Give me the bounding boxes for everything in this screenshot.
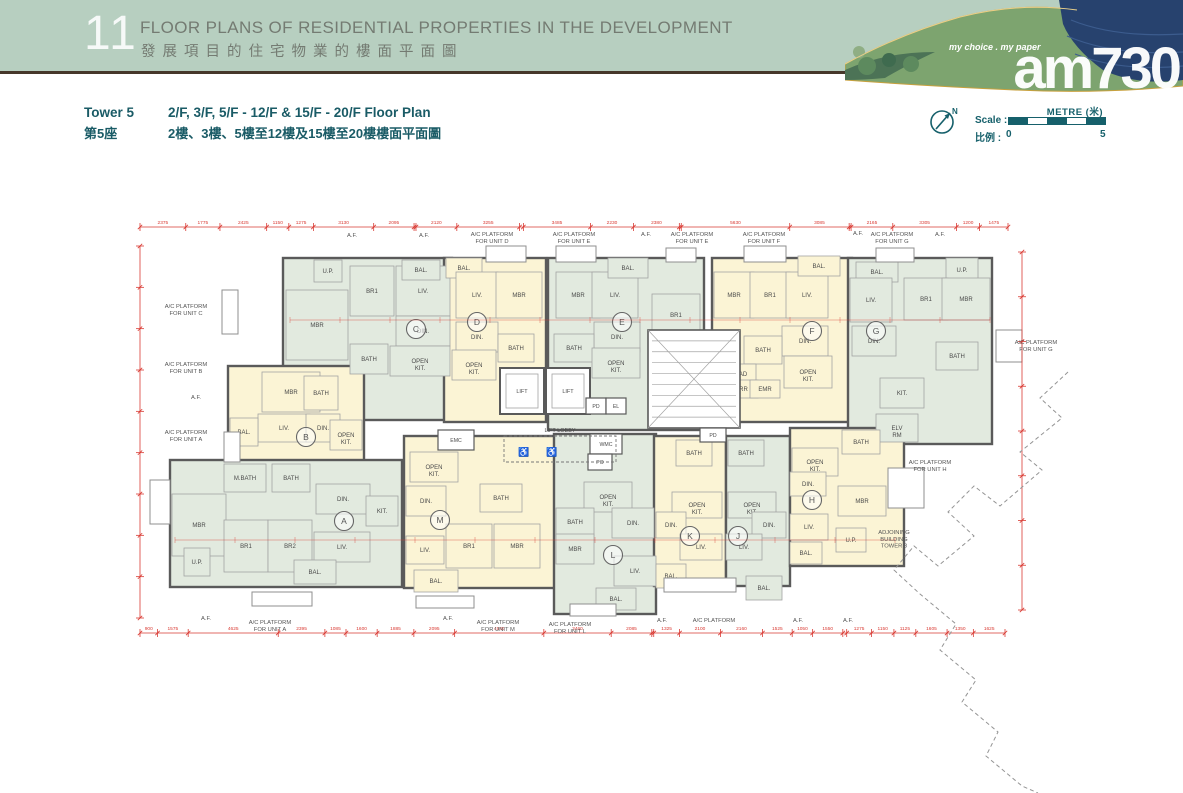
room-label: ELVRM bbox=[892, 426, 903, 439]
annotation-a-f-: A.F. bbox=[201, 616, 211, 622]
room-label: BR1 bbox=[463, 544, 475, 550]
dim-value: 1150 bbox=[878, 626, 889, 632]
room-label: LIV. bbox=[420, 548, 430, 554]
dim-value: 2165 bbox=[867, 220, 878, 226]
annotation-a-f-: A.F. bbox=[853, 231, 863, 237]
room-label: BAL. bbox=[308, 570, 321, 576]
ac-platform bbox=[996, 330, 1022, 362]
dim-value: 3255 bbox=[483, 220, 494, 226]
room-label: BATH bbox=[313, 391, 329, 397]
room-label: BATH bbox=[738, 451, 754, 457]
room-label: BAL. bbox=[609, 597, 622, 603]
room-label: U.P. bbox=[957, 268, 968, 274]
dim-value: 1150 bbox=[273, 220, 284, 226]
room-label: BAL. bbox=[429, 579, 442, 585]
room-label: DIN. bbox=[471, 335, 483, 341]
room-label: BR1 bbox=[240, 544, 252, 550]
room-label: LIV. bbox=[472, 293, 482, 299]
room-label: BATH bbox=[283, 476, 299, 482]
room-label: LIV. bbox=[802, 293, 812, 299]
ac-platform bbox=[556, 246, 596, 262]
room-label: BAL. bbox=[799, 551, 812, 557]
unit-G-letter: G bbox=[873, 326, 880, 336]
annotation-a-c-platform: A/C PLATFORMFOR UNIT G bbox=[1015, 340, 1058, 353]
ac-platform bbox=[666, 248, 696, 262]
unit-D-letter: D bbox=[474, 317, 480, 327]
room-label: BR2 bbox=[284, 544, 296, 550]
annotation-a-c-platform: A/C PLATFORMFOR UNIT E bbox=[671, 232, 714, 245]
dim-value: 5630 bbox=[730, 220, 741, 226]
dim-value: 2100 bbox=[695, 626, 706, 632]
dim-value: 4625 bbox=[228, 626, 239, 632]
service-room-label: EL bbox=[613, 404, 619, 410]
room-label: BAL. bbox=[414, 268, 427, 274]
room-label: BATH bbox=[508, 346, 524, 352]
dim-value: 900 bbox=[145, 626, 153, 632]
unit-H-letter: H bbox=[809, 495, 815, 505]
dim-value: 1085 bbox=[330, 626, 341, 632]
annotation-a-c-platform: A/C PLATFORMFOR UNIT H bbox=[909, 460, 952, 473]
annotation-a-c-platform: A/C PLATFORMFOR UNIT E bbox=[553, 232, 596, 245]
dim-value: 1275 bbox=[854, 626, 865, 632]
unit-J-letter: J bbox=[736, 531, 740, 541]
lift-lobby-label: LIFT LOBBY bbox=[544, 428, 575, 434]
room-label: MBR bbox=[192, 523, 206, 529]
annotation-a-c-platform: A/C PLATFORMFOR UNIT D bbox=[471, 232, 514, 245]
service-room-label: PO bbox=[596, 460, 604, 466]
room-label: BAL. bbox=[757, 586, 770, 592]
annotation-a-f-: A.F. bbox=[191, 395, 201, 401]
room-label: MBR bbox=[959, 297, 973, 303]
room-label: LIV. bbox=[739, 545, 749, 551]
room-label: LIV. bbox=[610, 293, 620, 299]
dim-value: 2375 bbox=[158, 220, 169, 226]
room-label: MBR bbox=[855, 499, 869, 505]
dim-value: 2425 bbox=[238, 220, 249, 226]
room-label: BR1 bbox=[920, 297, 932, 303]
dim-value: 1050 bbox=[797, 626, 808, 632]
annotation-a-c-platform: A/C PLATFORMFOR UNIT L bbox=[549, 622, 592, 635]
room-label: EMR bbox=[758, 387, 772, 393]
ac-platform bbox=[222, 290, 238, 334]
dim-value: 1325 bbox=[661, 626, 672, 632]
lift-label: LIFT bbox=[516, 389, 528, 395]
ac-platform bbox=[252, 592, 312, 606]
annotation-a-c-platform: A/C PLATFORMFOR UNIT F bbox=[743, 232, 786, 245]
annotation-a-f-: A.F. bbox=[347, 233, 357, 239]
service-room-label: PD bbox=[709, 433, 716, 439]
room-label: BATH bbox=[566, 346, 582, 352]
dim-value: 1625 bbox=[984, 626, 995, 632]
dim-value: 1775 bbox=[198, 220, 209, 226]
service-room-label: EMC bbox=[450, 438, 462, 444]
room-label: DIN. bbox=[627, 521, 639, 527]
dim-value: 1885 bbox=[390, 626, 401, 632]
dim-value: 1125 bbox=[900, 626, 911, 632]
room-label: BATH bbox=[755, 348, 771, 354]
room-label: BAL. bbox=[457, 266, 470, 272]
room-label: U.P. bbox=[192, 560, 203, 566]
wheelchair-icon: ♿ bbox=[518, 446, 529, 457]
lift-label: LIFT bbox=[562, 389, 574, 395]
dim-value: 2120 bbox=[431, 220, 442, 226]
dim-value: 2380 bbox=[651, 220, 662, 226]
room-label: BAL. bbox=[870, 270, 883, 276]
dim-value: 3305 bbox=[919, 220, 930, 226]
annotation-a-c-platform: A/C PLATFORMFOR UNIT A bbox=[165, 430, 208, 443]
dim-value: 2085 bbox=[626, 626, 637, 632]
annotation-a-c-platform: A/C PLATFORMFOR UNIT C bbox=[165, 304, 208, 317]
room-label: MBR bbox=[310, 323, 324, 329]
dim-value: 1200 bbox=[963, 220, 974, 226]
room-label: DIN. bbox=[337, 497, 349, 503]
dim-value: 1600 bbox=[356, 626, 367, 632]
room-label: MBR bbox=[727, 293, 741, 299]
room-label: U.P. bbox=[846, 538, 857, 544]
unit-B-letter: B bbox=[303, 432, 309, 442]
room-label: BR1 bbox=[670, 313, 682, 319]
room-label: DIN. bbox=[763, 523, 775, 529]
room-label: DIN. bbox=[420, 499, 432, 505]
annotation-a-f-: A.F. bbox=[419, 233, 429, 239]
annotation-a-c-platform: A/C PLATFORMFOR UNIT A bbox=[249, 620, 292, 633]
wheelchair-icon: ♿ bbox=[546, 446, 557, 457]
room-label: LIV. bbox=[418, 289, 428, 295]
dim-value: 1550 bbox=[822, 626, 833, 632]
unit-K-letter: K bbox=[687, 531, 693, 541]
room-label: LIV. bbox=[804, 525, 814, 531]
room-label: M.BATH bbox=[234, 476, 256, 482]
room-label: DIN. bbox=[317, 426, 329, 432]
dim-value: 3130 bbox=[338, 220, 349, 226]
room-label: BR1 bbox=[764, 293, 776, 299]
room-label: DIN. bbox=[611, 335, 623, 341]
room-label: KIT. bbox=[897, 391, 908, 397]
room-label: LIV. bbox=[630, 569, 640, 575]
unit-F-letter: F bbox=[809, 326, 814, 336]
ac-platform bbox=[416, 596, 474, 608]
unit-A-letter: A bbox=[341, 516, 347, 526]
room-label: LIV. bbox=[696, 545, 706, 551]
annotation-a-c-platform: A/C PLATFORM bbox=[693, 618, 736, 624]
floor-plan: MBRBR1LIV.DIN.BATHOPENKIT.BAL.U.P.MBRBAT… bbox=[0, 0, 1183, 793]
ac-platform bbox=[876, 248, 914, 262]
room-label: LIV. bbox=[866, 298, 876, 304]
unit-C-letter: C bbox=[413, 324, 419, 334]
ac-platform bbox=[744, 246, 786, 262]
room-label: U.P. bbox=[323, 269, 334, 275]
dim-value: 2230 bbox=[607, 220, 618, 226]
dim-value: 2095 bbox=[389, 220, 400, 226]
ac-platform bbox=[570, 604, 616, 616]
ac-platform bbox=[486, 246, 526, 262]
annotation-adjoining: ADJOININGBUILDINGTOWER 3 bbox=[878, 530, 910, 550]
room-label: MBR bbox=[512, 293, 526, 299]
ac-platform bbox=[664, 578, 736, 592]
room-label: BAL. bbox=[621, 266, 634, 272]
unit-E-letter: E bbox=[619, 317, 625, 327]
room-label: MBR bbox=[510, 544, 524, 550]
dim-value: 2395 bbox=[296, 626, 307, 632]
annotation-a-c-platform: A/C PLATFORMFOR UNIT M bbox=[477, 620, 520, 633]
service-room-label: WMC bbox=[600, 442, 613, 448]
dim-value: 2160 bbox=[736, 626, 747, 632]
ac-platform bbox=[224, 432, 240, 462]
annotation-a-c-platform: A/C PLATFORMFOR UNIT B bbox=[165, 362, 208, 375]
dim-value: 1350 bbox=[955, 626, 966, 632]
room-label: KIT. bbox=[377, 509, 388, 515]
annotation-a-f-: A.F. bbox=[793, 618, 803, 624]
dim-value: 1525 bbox=[772, 626, 783, 632]
room-label: BATH bbox=[949, 354, 965, 360]
unit-L-letter: L bbox=[611, 550, 616, 560]
annotation-a-c-platform: A/C PLATFORMFOR UNIT G bbox=[871, 232, 914, 245]
dim-value: 1475 bbox=[988, 220, 999, 226]
ac-platform bbox=[150, 480, 170, 524]
room-label: DIN. bbox=[665, 523, 677, 529]
dim-value: 2095 bbox=[429, 626, 440, 632]
room-label: BATH bbox=[361, 357, 377, 363]
unit-M-letter: M bbox=[436, 515, 443, 525]
dim-value: 1605 bbox=[926, 626, 937, 632]
room-label: BATH bbox=[567, 520, 583, 526]
room-label: MBR bbox=[568, 547, 582, 553]
room-label: BAL. bbox=[812, 264, 825, 270]
room-label: LIV. bbox=[279, 426, 289, 432]
dim-value: 3085 bbox=[814, 220, 825, 226]
dim-value: 1275 bbox=[296, 220, 307, 226]
annotation-a-f-: A.F. bbox=[641, 232, 651, 238]
brochure-page: 11 FLOOR PLANS OF RESIDENTIAL PROPERTIES… bbox=[0, 0, 1183, 793]
room-label: BR1 bbox=[366, 289, 378, 295]
service-room-label: PD bbox=[592, 404, 599, 410]
room-label: BATH bbox=[686, 451, 702, 457]
room-label: LIV. bbox=[337, 545, 347, 551]
annotation-a-f-: A.F. bbox=[843, 618, 853, 624]
dim-value: 1575 bbox=[168, 626, 179, 632]
room-label: BATH bbox=[493, 496, 509, 502]
room-label: DIN. bbox=[802, 482, 814, 488]
room-label: BATH bbox=[853, 440, 869, 446]
annotation-a-f-: A.F. bbox=[657, 618, 667, 624]
annotation-a-f-: A.F. bbox=[443, 616, 453, 622]
dim-value: 3485 bbox=[552, 220, 563, 226]
room-label: MBR bbox=[571, 293, 585, 299]
ac-platform bbox=[888, 468, 924, 508]
annotation-a-f-: A.F. bbox=[935, 232, 945, 238]
room-label: MBR bbox=[284, 390, 298, 396]
